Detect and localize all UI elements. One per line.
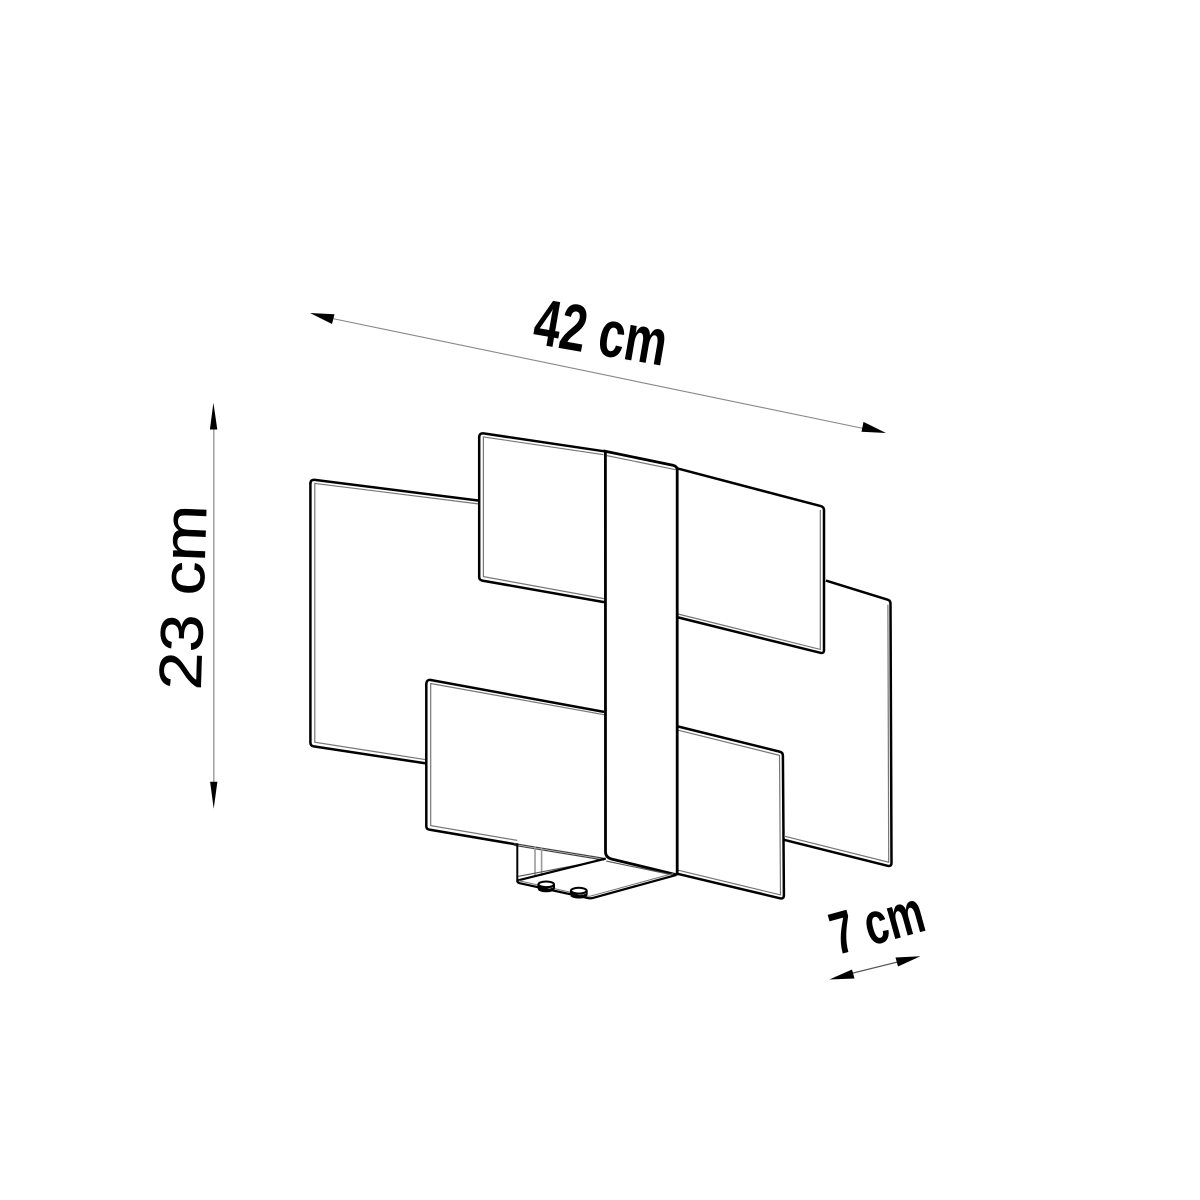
svg-text:23 cm: 23 cm (147, 503, 220, 691)
